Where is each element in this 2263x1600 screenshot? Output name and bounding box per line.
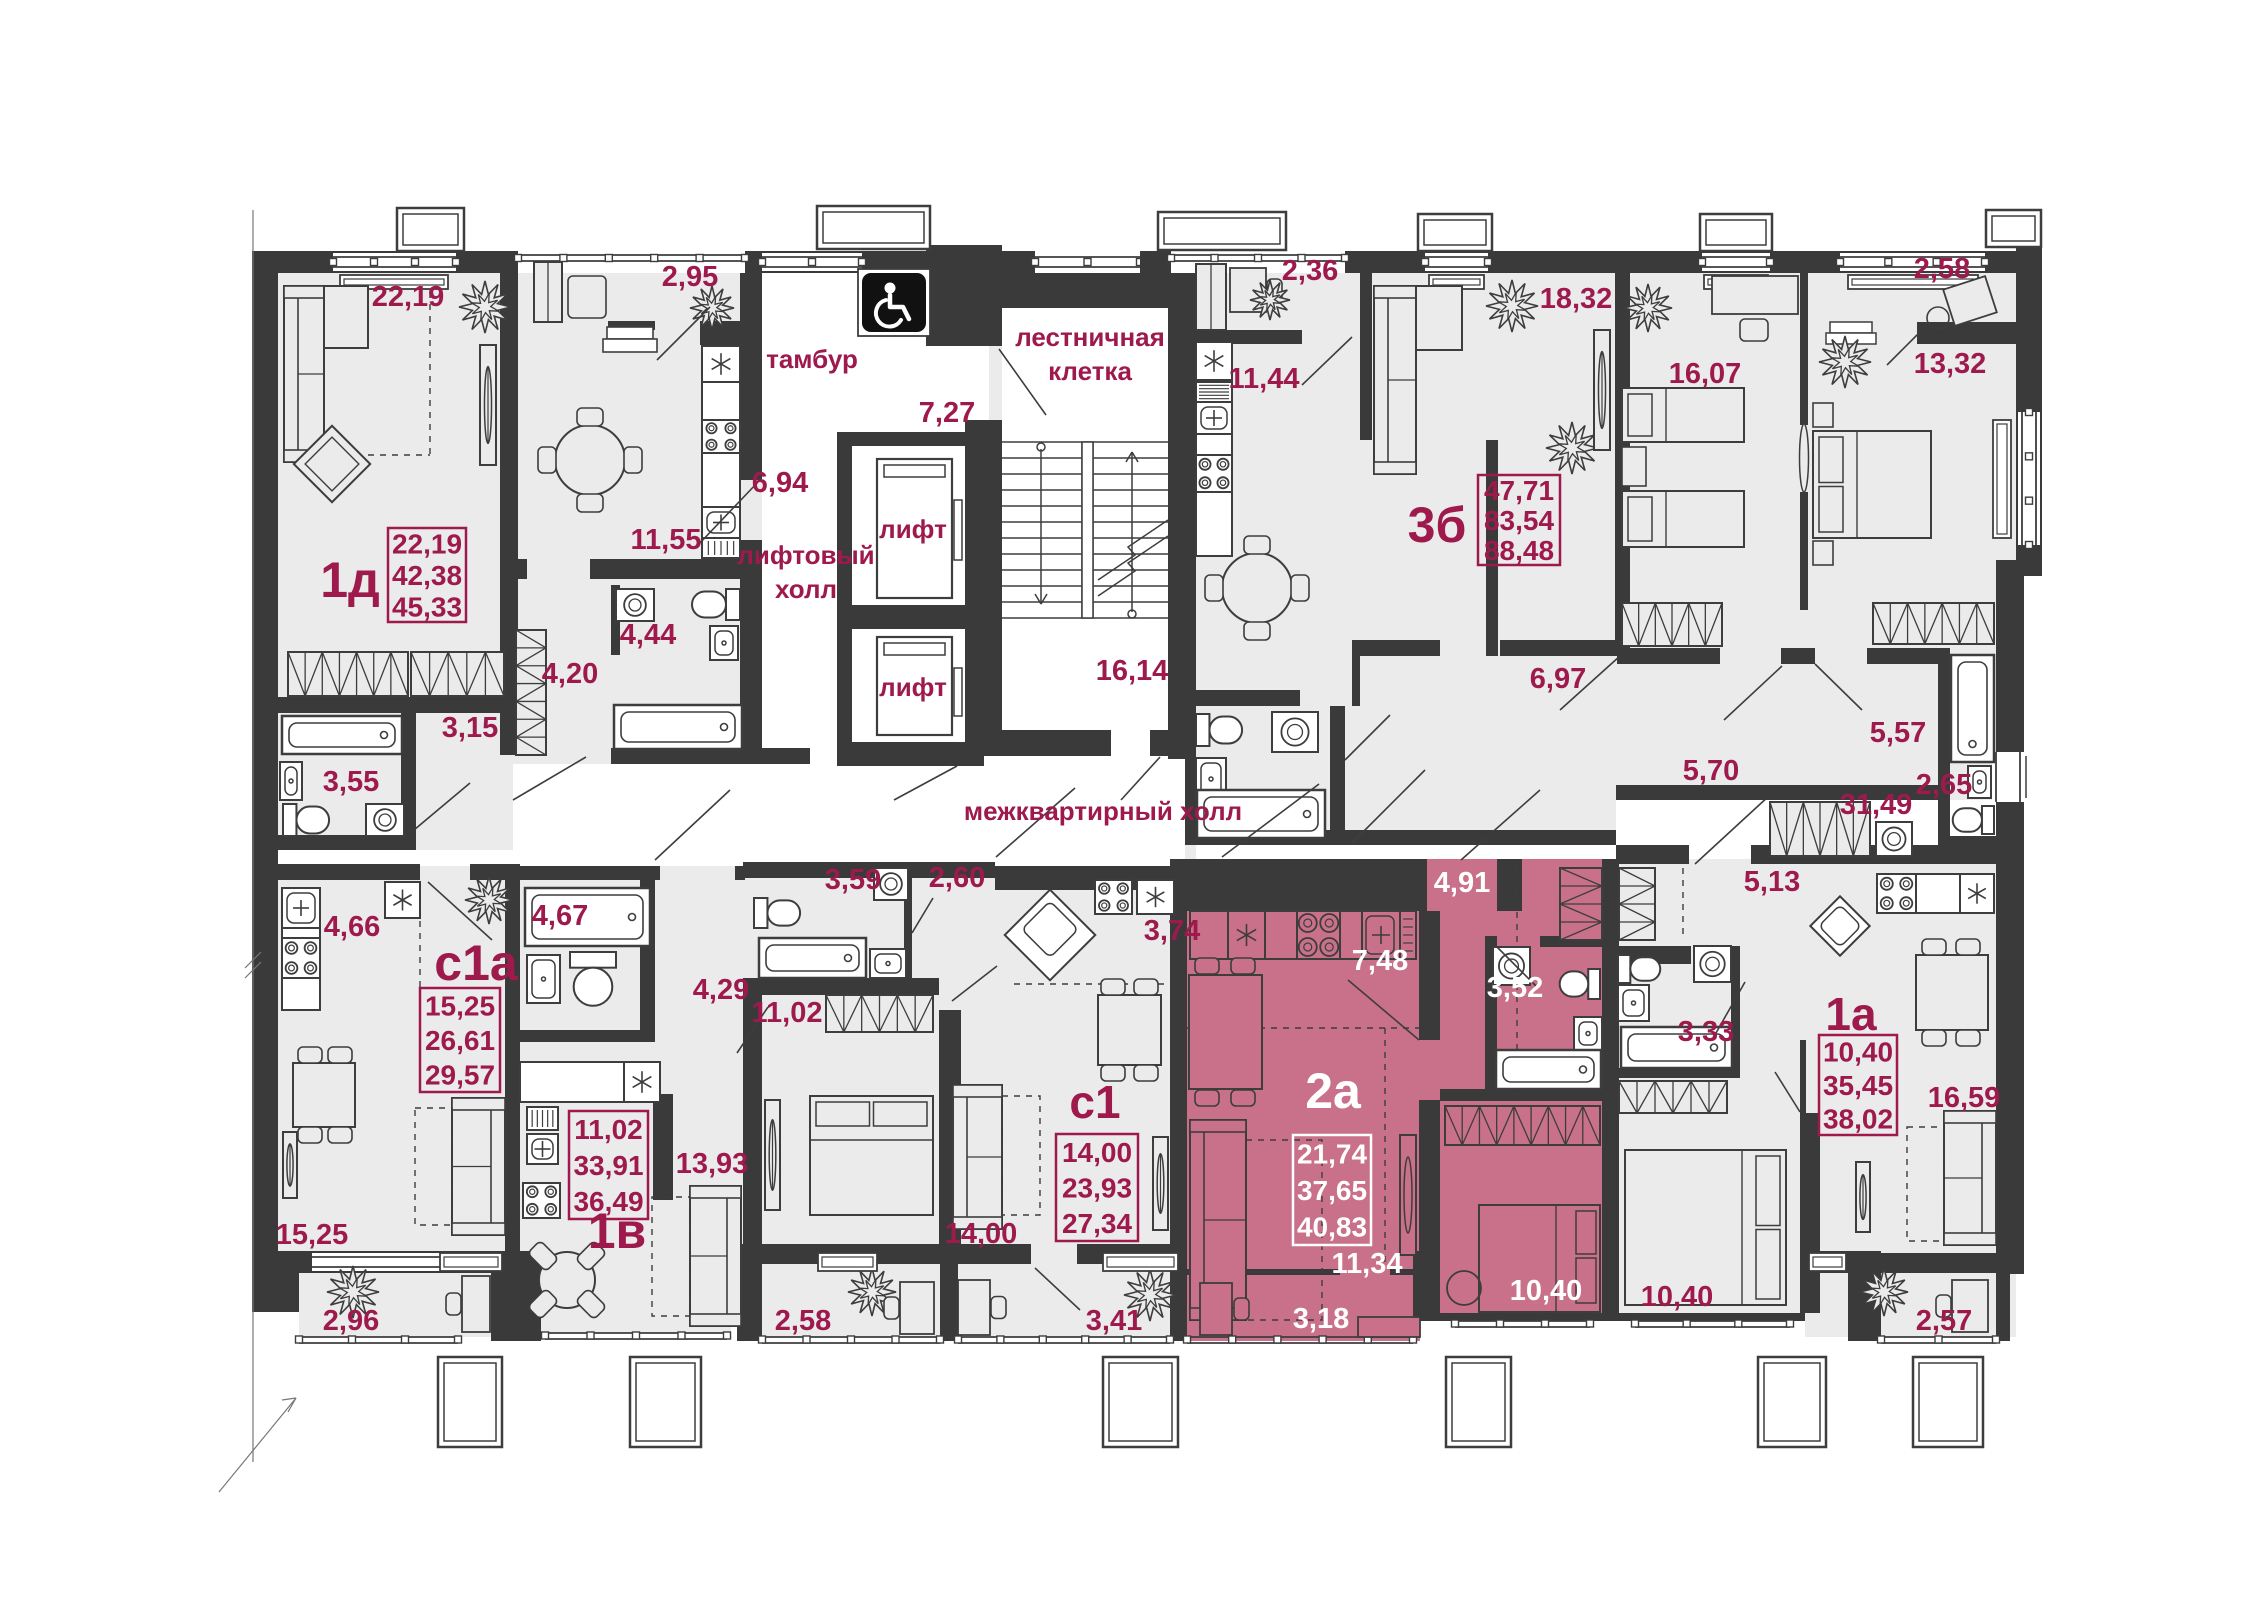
svg-text:7,48: 7,48 <box>1352 945 1408 977</box>
svg-text:2,60: 2,60 <box>929 862 985 894</box>
svg-text:10,40: 10,40 <box>1641 1281 1714 1313</box>
svg-text:36,49: 36,49 <box>573 1186 643 1217</box>
svg-text:16,07: 16,07 <box>1669 358 1742 390</box>
svg-text:11,02: 11,02 <box>574 1114 643 1145</box>
svg-text:холл: холл <box>775 574 837 604</box>
svg-text:33,91: 33,91 <box>573 1150 643 1181</box>
svg-text:83,54: 83,54 <box>1484 505 1554 536</box>
svg-text:10,40: 10,40 <box>1823 1037 1893 1068</box>
svg-text:2,36: 2,36 <box>1282 255 1338 287</box>
svg-text:лифт: лифт <box>879 672 947 702</box>
svg-text:26,61: 26,61 <box>425 1025 495 1056</box>
svg-text:5,13: 5,13 <box>1744 866 1800 898</box>
svg-text:2,65: 2,65 <box>1916 769 1972 801</box>
svg-text:2,95: 2,95 <box>662 261 718 293</box>
svg-text:1а: 1а <box>1825 988 1877 1040</box>
svg-text:5,70: 5,70 <box>1683 755 1739 787</box>
svg-text:4,66: 4,66 <box>324 911 380 943</box>
svg-text:15,25: 15,25 <box>425 990 495 1021</box>
svg-text:клетка: клетка <box>1048 356 1132 386</box>
svg-text:27,34: 27,34 <box>1062 1208 1132 1239</box>
svg-text:лифтовый: лифтовый <box>737 540 874 570</box>
svg-text:40,83: 40,83 <box>1297 1212 1367 1243</box>
svg-text:3,55: 3,55 <box>323 766 379 798</box>
svg-text:3б: 3б <box>1408 497 1467 553</box>
svg-text:10,40: 10,40 <box>1510 1275 1583 1307</box>
svg-text:42,38: 42,38 <box>392 560 462 591</box>
svg-text:29,57: 29,57 <box>425 1060 495 1091</box>
svg-text:11,02: 11,02 <box>752 997 823 1029</box>
svg-text:5,57: 5,57 <box>1870 717 1926 749</box>
svg-text:3,41: 3,41 <box>1086 1305 1142 1337</box>
svg-text:4,91: 4,91 <box>1434 867 1490 899</box>
svg-text:с1: с1 <box>1069 1076 1120 1128</box>
svg-text:тамбур: тамбур <box>766 344 858 374</box>
svg-text:14,00: 14,00 <box>945 1218 1018 1250</box>
svg-text:47,71: 47,71 <box>1484 475 1554 506</box>
svg-text:с1а: с1а <box>434 935 519 991</box>
svg-text:4,29: 4,29 <box>693 974 749 1006</box>
svg-text:3,59: 3,59 <box>825 864 881 896</box>
svg-text:16,14: 16,14 <box>1096 655 1169 687</box>
svg-text:3,18: 3,18 <box>1293 1303 1349 1335</box>
svg-text:14,00: 14,00 <box>1062 1137 1132 1168</box>
svg-text:31,49: 31,49 <box>1840 789 1913 821</box>
svg-text:13,32: 13,32 <box>1914 348 1987 380</box>
svg-text:23,93: 23,93 <box>1062 1173 1132 1204</box>
svg-text:4,44: 4,44 <box>620 619 676 651</box>
svg-text:3,52: 3,52 <box>1487 972 1543 1004</box>
svg-text:22,19: 22,19 <box>372 281 445 313</box>
svg-text:1д: 1д <box>320 552 380 608</box>
svg-text:6,97: 6,97 <box>1530 663 1586 695</box>
svg-text:4,20: 4,20 <box>542 658 598 690</box>
svg-text:лестничная: лестничная <box>1015 322 1165 352</box>
svg-text:11,55: 11,55 <box>631 524 702 556</box>
svg-text:7,27: 7,27 <box>919 397 975 429</box>
svg-text:22,19: 22,19 <box>392 529 462 560</box>
svg-text:6,94: 6,94 <box>752 467 808 499</box>
svg-text:11,44: 11,44 <box>1229 363 1300 395</box>
svg-text:11,34: 11,34 <box>1332 1248 1403 1280</box>
svg-text:15,25: 15,25 <box>276 1219 349 1251</box>
svg-text:2,58: 2,58 <box>775 1305 831 1337</box>
svg-text:16,59: 16,59 <box>1928 1082 2001 1114</box>
svg-text:38,02: 38,02 <box>1823 1103 1893 1134</box>
svg-text:2,58: 2,58 <box>1914 253 1970 285</box>
svg-text:межквартирный холл: межквартирный холл <box>964 796 1242 826</box>
svg-text:лифт: лифт <box>879 514 947 544</box>
svg-text:2,96: 2,96 <box>323 1305 379 1337</box>
svg-text:37,65: 37,65 <box>1297 1175 1367 1206</box>
svg-text:3,33: 3,33 <box>1678 1016 1734 1048</box>
svg-text:2,57: 2,57 <box>1916 1305 1972 1337</box>
svg-text:3,15: 3,15 <box>442 712 498 744</box>
svg-text:21,74: 21,74 <box>1297 1138 1367 1169</box>
svg-text:4,67: 4,67 <box>532 900 588 932</box>
svg-text:2а: 2а <box>1305 1063 1362 1119</box>
svg-text:88,48: 88,48 <box>1484 535 1554 566</box>
svg-text:13,93: 13,93 <box>676 1148 749 1180</box>
svg-text:18,32: 18,32 <box>1540 283 1613 315</box>
svg-text:3,74: 3,74 <box>1144 915 1200 947</box>
svg-text:45,33: 45,33 <box>392 591 462 622</box>
svg-text:35,45: 35,45 <box>1823 1070 1893 1101</box>
